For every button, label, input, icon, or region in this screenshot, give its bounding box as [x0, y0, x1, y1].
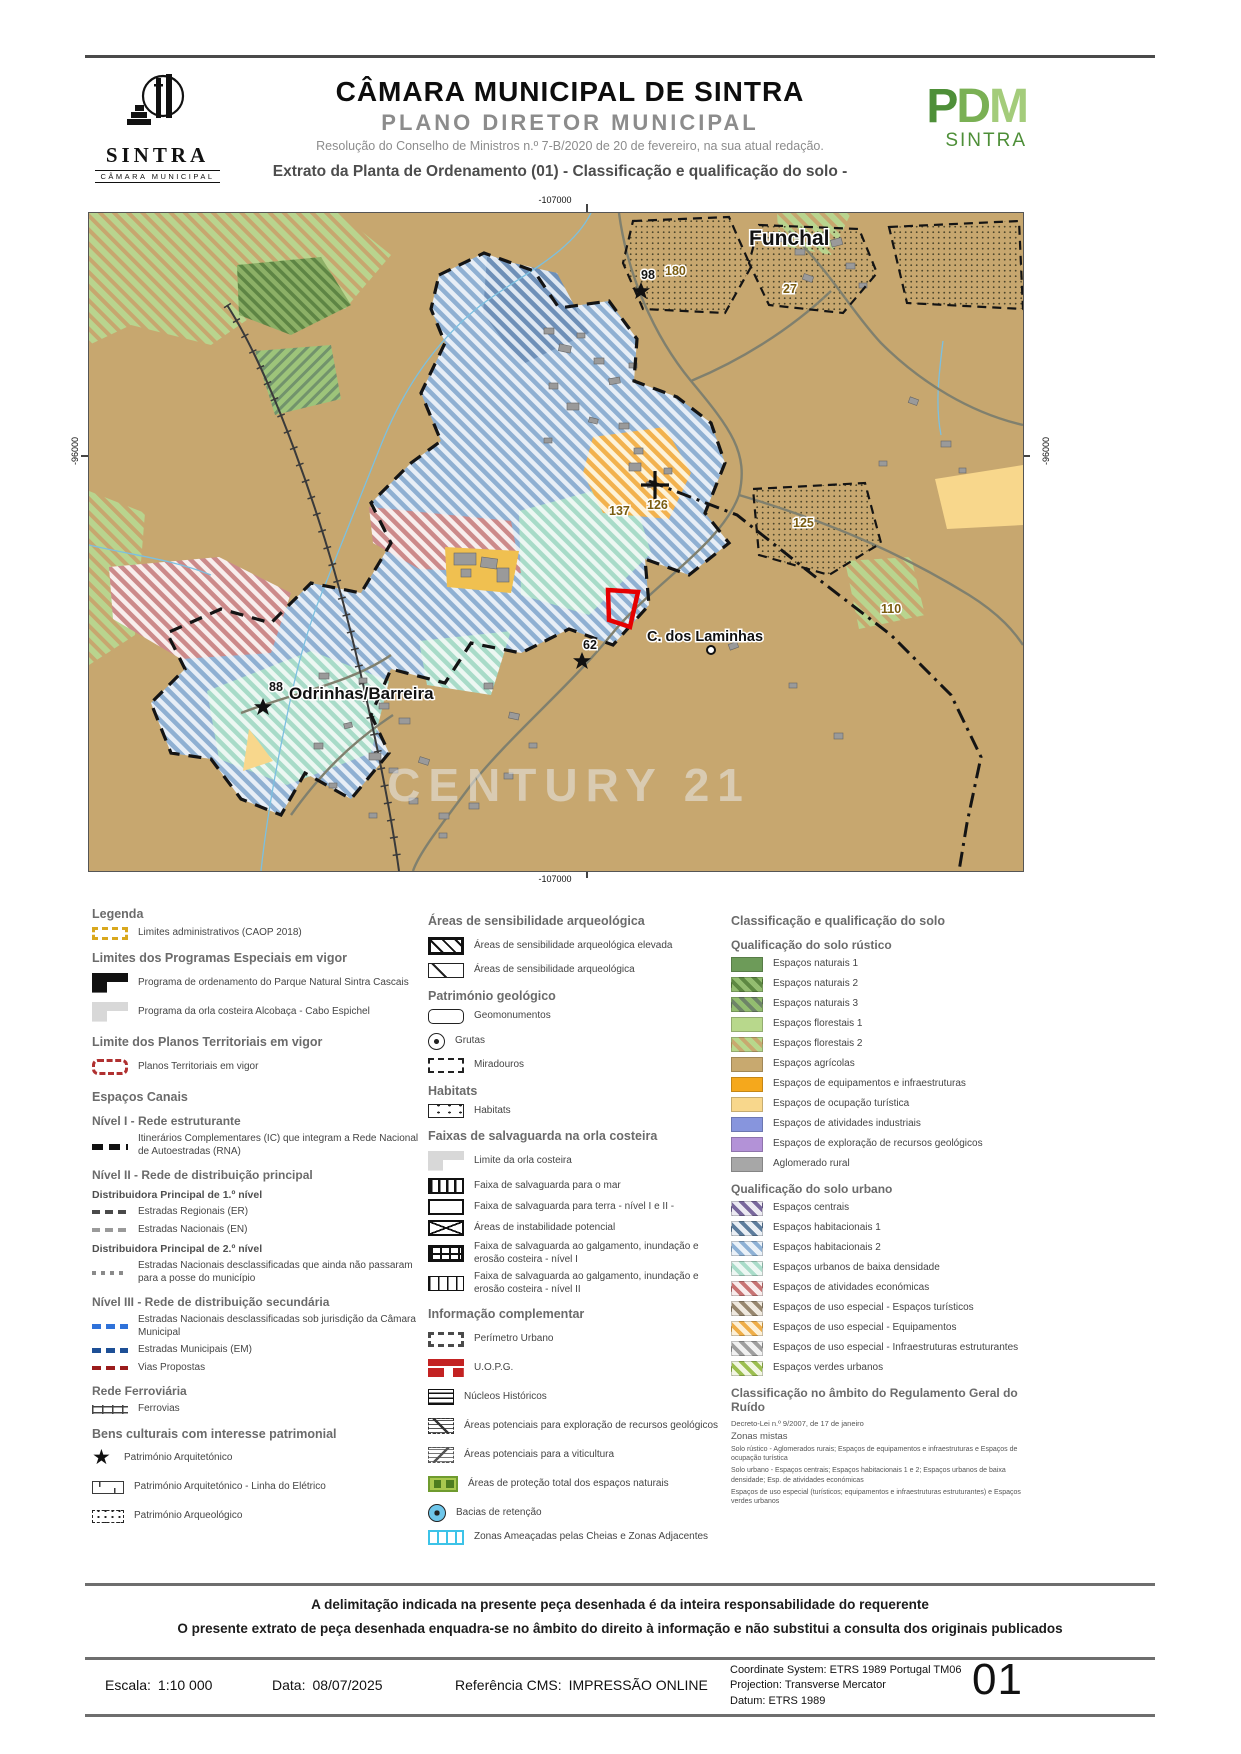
- legend-swatch-chip: [731, 1301, 763, 1316]
- legend-item-label: Espaços centrais: [773, 1202, 849, 1215]
- legend-item-label: Espaços de atividades económicas: [773, 1282, 929, 1295]
- footer-coordinate-system: Coordinate System: ETRS 1989 Portugal TM…: [730, 1663, 962, 1709]
- footer-escala-label: Escala:: [105, 1677, 151, 1693]
- legend-item-label: Património Arquitetónico - Linha do Elét…: [134, 1481, 326, 1494]
- legend-swatch-orla: [92, 1002, 128, 1022]
- footer-data-label: Data:: [272, 1677, 305, 1693]
- map-site-180: 180: [665, 264, 686, 278]
- legend-sub: Distribuidora Principal de 2.º nível: [92, 1243, 424, 1255]
- legend-item: Espaços de exploração de recursos geológ…: [731, 1137, 1033, 1152]
- legend-item-label: Habitats: [474, 1105, 511, 1118]
- legend-item: Espaços de uso especial - Equipamentos: [731, 1321, 1033, 1336]
- legend-swatch-chip: [731, 1321, 763, 1336]
- legend-swatch-habitats: [428, 1104, 464, 1118]
- footer-referencia: Referência CMS:IMPRESSÃO ONLINE: [455, 1677, 708, 1693]
- legend-h2: Nível II - Rede de distribuição principa…: [92, 1168, 424, 1182]
- legend-swatch-admin: [92, 927, 128, 940]
- legend-item: Espaços verdes urbanos: [731, 1361, 1033, 1376]
- legend-item: Itinerários Complementares (IC) que inte…: [92, 1133, 424, 1158]
- legend-swatch-vitic: [428, 1447, 454, 1463]
- legend-swatch-chip: [731, 1077, 763, 1092]
- legend-swatch-chip: [731, 997, 763, 1012]
- legend-item: Áreas de proteção total dos espaços natu…: [428, 1472, 730, 1496]
- legend-h1: Legenda: [92, 907, 424, 921]
- coord-tick-left: [81, 455, 88, 457]
- legend-item: Espaços urbanos de baixa densidade: [731, 1261, 1033, 1276]
- legend-item-label: Áreas de proteção total dos espaços natu…: [468, 1478, 669, 1491]
- legend-item-label: Áreas potenciais para exploração de recu…: [464, 1420, 718, 1433]
- legend-swatch-fx-galg2: [428, 1276, 464, 1291]
- legend-swatch-arqueo: [92, 1510, 124, 1523]
- legend-item-label: Espaços habitacionais 2: [773, 1242, 881, 1255]
- legend-column-limites: LegendaLimites administrativos (CAOP 201…: [92, 896, 424, 1534]
- legend-item: Programa da orla costeira Alcobaça - Cab…: [92, 1000, 424, 1024]
- legend-column-arqueologia: Áreas de sensibilidade arqueológicaÁreas…: [428, 903, 730, 1550]
- legend-swatch-er: [92, 1210, 128, 1214]
- org-title: CÂMARA MUNICIPAL DE SINTRA: [240, 76, 900, 108]
- legend-h1: Bens culturais com interesse patrimonial: [92, 1427, 424, 1441]
- legend-item-label: Itinerários Complementares (IC) que inte…: [138, 1133, 424, 1158]
- header-title-block: CÂMARA MUNICIPAL DE SINTRA PLANO DIRETOR…: [240, 76, 900, 153]
- resolution-text: Resolução do Conselho de Ministros n.º 7…: [240, 139, 900, 153]
- legend-item-label: Bacias de retenção: [456, 1507, 542, 1520]
- legend-h2: Qualificação do solo urbano: [731, 1182, 1033, 1196]
- legend-h1: Faixas de salvaguarda na orla costeira: [428, 1129, 730, 1143]
- legend-item-label: Áreas de instabilidade potencial: [474, 1222, 615, 1235]
- legend-swatch-chip: [731, 1221, 763, 1236]
- legend-item: Património Arquitetónico: [92, 1447, 424, 1471]
- legend-swatch-chip: [731, 1117, 763, 1132]
- legend-item: Limite da orla costeira: [428, 1149, 730, 1173]
- legend-swatch-chip: [731, 1057, 763, 1072]
- legend-item-label: U.O.P.G.: [474, 1362, 513, 1375]
- legend-item: Aglomerado rural: [731, 1157, 1033, 1172]
- legend-sub: Distribuidora Principal de 1.º nível: [92, 1189, 424, 1201]
- map-site-125: 125: [793, 516, 814, 530]
- legend-swatch-en2: [92, 1271, 128, 1275]
- legend-h2: Nível III - Rede de distribuição secundá…: [92, 1295, 424, 1309]
- legend-item-label: Espaços de exploração de recursos geológ…: [773, 1138, 983, 1151]
- legend-swatch-en: [92, 1228, 128, 1232]
- legend-swatch-uopg: [428, 1359, 464, 1377]
- legend-item: Limites administrativos (CAOP 2018): [92, 927, 424, 940]
- legend-item: Áreas de sensibilidade arqueológica: [428, 963, 730, 978]
- legend-item-label: Limite da orla costeira: [474, 1155, 572, 1168]
- legend-h1: Limite dos Planos Territoriais em vigor: [92, 1035, 424, 1049]
- legend-swatch-fx-galg1: [428, 1245, 464, 1262]
- legend-item: Geomonumentos: [428, 1009, 730, 1024]
- legend-item: Espaços agrícolas: [731, 1057, 1033, 1072]
- legend-item-label: Áreas potenciais para a viticultura: [464, 1449, 614, 1462]
- legend-h1: Limites dos Programas Especiais em vigor: [92, 951, 424, 965]
- coord-label-right: -96000: [1041, 425, 1051, 465]
- footer-referencia-label: Referência CMS:: [455, 1677, 562, 1693]
- legend-item-label: Espaços florestais 1: [773, 1018, 863, 1031]
- legend-item-label: Espaços de atividades industriais: [773, 1118, 921, 1131]
- legend-item-label: Faixa de salvaguarda para terra - nível …: [474, 1201, 674, 1214]
- legend-item: Espaços naturais 3: [731, 997, 1033, 1012]
- legend-item: Espaços habitacionais 2: [731, 1241, 1033, 1256]
- legend-h2: Nível I - Rede estruturante: [92, 1114, 424, 1128]
- legend-item: Estradas Nacionais (EN): [92, 1224, 424, 1237]
- map-label-funchal: Funchal: [749, 227, 830, 250]
- legend-item-label: Programa da orla costeira Alcobaça - Cab…: [138, 1006, 370, 1019]
- page: { "header": { "org": "CÂMARA MUNICIPAL D…: [0, 0, 1241, 1754]
- legend-item: Estradas Regionais (ER): [92, 1206, 424, 1219]
- legend-fine: Solo urbano - Espaços centrais; Espaços …: [731, 1466, 1033, 1485]
- map-label-odrinhas: Odrinhas/Barreira: [289, 684, 434, 703]
- legend-item-label: Planos Territoriais em vigor: [138, 1061, 258, 1074]
- legend-item-label: Espaços florestais 2: [773, 1038, 863, 1051]
- legend-item: Habitats: [428, 1104, 730, 1118]
- legend-swatch-bacias: [428, 1504, 446, 1522]
- legend-swatch-chip: [731, 1157, 763, 1172]
- legend-swatch-star: [92, 1449, 114, 1469]
- legend-item: Zonas Ameaçadas pelas Cheias e Zonas Adj…: [428, 1530, 730, 1545]
- legend-item-label: Estradas Municipais (EM): [138, 1344, 252, 1357]
- footer-data: Data:08/07/2025: [272, 1677, 383, 1693]
- legend-item-label: Estradas Nacionais desclassificadas que …: [138, 1260, 424, 1285]
- legend-h2: Rede Ferroviária: [92, 1384, 424, 1398]
- footer-rule-bottom: [85, 1714, 1155, 1717]
- legend-item-label: Espaços naturais 2: [773, 978, 858, 991]
- map-watermark: CENTURY 21: [387, 759, 751, 811]
- legend-item: Espaços de uso especial - Infraestrutura…: [731, 1341, 1033, 1356]
- legend-item: Espaços naturais 2: [731, 977, 1033, 992]
- legend-swatch-fx-terra: [428, 1199, 464, 1215]
- legend-item-label: Áreas de sensibilidade arqueológica elev…: [474, 940, 672, 953]
- legend-h1: Espaços Canais: [92, 1090, 424, 1104]
- pdm-name: SINTRA: [875, 130, 1027, 152]
- legend-item: Espaços de uso especial - Espaços turíst…: [731, 1301, 1033, 1316]
- legend-item: Espaços naturais 1: [731, 957, 1033, 972]
- legend-item-label: Áreas de sensibilidade arqueológica: [474, 964, 635, 977]
- legend-swatch-pnsc: [92, 973, 128, 993]
- coord-label-left: -96000: [70, 425, 80, 465]
- disclaimer-line1: A delimitação indicada na presente peça …: [85, 1597, 1155, 1612]
- legend-item-label: Espaços verdes urbanos: [773, 1362, 883, 1375]
- legend-item: Perímetro Urbano: [428, 1327, 730, 1351]
- legend-item-label: Vias Propostas: [138, 1362, 205, 1375]
- pdm-letter-p: P: [926, 80, 956, 133]
- legend-item-label: Programa de ordenamento do Parque Natura…: [138, 977, 409, 990]
- map-site-88: 88: [269, 680, 283, 694]
- footer-referencia-value: IMPRESSÃO ONLINE: [569, 1677, 708, 1693]
- map-site-98: 98: [641, 268, 655, 282]
- legend-item-label: Espaços de uso especial - Infraestrutura…: [773, 1342, 1018, 1355]
- legend-item: Espaços de atividades industriais: [731, 1117, 1033, 1132]
- legend-fine: Solo rústico - Aglomerados rurais; Espaç…: [731, 1445, 1033, 1464]
- legend-item-label: Património Arquitetónico: [124, 1452, 232, 1465]
- footer-escala: Escala:1:10 000: [105, 1677, 212, 1693]
- legend-swatch-chip: [731, 1241, 763, 1256]
- legend-item: Património Arquitetónico - Linha do Elét…: [92, 1476, 424, 1500]
- legend-item-label: Espaços naturais 1: [773, 958, 858, 971]
- legend-item-label: Limites administrativos (CAOP 2018): [138, 927, 302, 940]
- legend-item: Espaços de ocupação turística: [731, 1097, 1033, 1112]
- legend-item-label: Aglomerado rural: [773, 1158, 850, 1171]
- legend-item-label: Espaços de ocupação turística: [773, 1098, 909, 1111]
- sintra-logo-icon: [119, 72, 197, 136]
- legend-swatch-em: [92, 1348, 128, 1353]
- legend-h1: Habitats: [428, 1084, 730, 1098]
- legend-item: Espaços florestais 1: [731, 1017, 1033, 1032]
- legend-swatch-chip: [731, 957, 763, 972]
- legend-item: Áreas de sensibilidade arqueológica elev…: [428, 934, 730, 958]
- legend-item: Áreas potenciais para exploração de recu…: [428, 1414, 730, 1438]
- coord-label-bottom: -107000: [88, 874, 1022, 884]
- legend-item: Espaços habitacionais 1: [731, 1221, 1033, 1236]
- legend-item: Núcleos Históricos: [428, 1385, 730, 1409]
- legend-item-label: Espaços de uso especial - Equipamentos: [773, 1322, 956, 1335]
- legend-item-label: Estradas Nacionais desclassificadas sob …: [138, 1314, 424, 1339]
- legend-swatch-chip: [731, 1341, 763, 1356]
- legend-swatch-perim: [428, 1332, 464, 1347]
- legend-swatch-ncm: [92, 1324, 128, 1329]
- legend-item: Faixa de salvaguarda ao galgamento, inun…: [428, 1241, 730, 1266]
- legend-item: Espaços de atividades económicas: [731, 1281, 1033, 1296]
- legend-swatch-chip: [731, 1201, 763, 1216]
- legend-item: Estradas Nacionais desclassificadas que …: [92, 1260, 424, 1285]
- map-site-137: 137: [609, 504, 630, 518]
- legend-h1: Informação complementar: [428, 1307, 730, 1321]
- legend-item-label: Faixa de salvaguarda para o mar: [474, 1180, 621, 1193]
- legend-item-label: Espaços de uso especial - Espaços turíst…: [773, 1302, 974, 1315]
- legend-swatch-tram: [92, 1481, 124, 1494]
- legend-swatch-chip: [731, 1137, 763, 1152]
- legend-note2: Zonas mistas: [731, 1431, 1033, 1442]
- legend-item-label: Núcleos Históricos: [464, 1391, 547, 1404]
- legend-swatch-planos: [92, 1059, 128, 1075]
- legend-h1: Áreas de sensibilidade arqueológica: [428, 914, 730, 928]
- legend-fine: Espaços de uso especial (turísticos; equ…: [731, 1488, 1033, 1507]
- pdm-logo: PDM SINTRA: [875, 84, 1027, 152]
- legend-item: Ferrovias: [92, 1403, 424, 1416]
- legend-item: Áreas potenciais para a viticultura: [428, 1443, 730, 1467]
- legend-swatch-chip: [731, 1097, 763, 1112]
- legend-item: Planos Territoriais em vigor: [92, 1055, 424, 1079]
- legend-item: Programa de ordenamento do Parque Natura…: [92, 971, 424, 995]
- legend-swatch-vias: [92, 1366, 128, 1371]
- legend-item: Património Arqueológico: [92, 1505, 424, 1529]
- legend-swatch-chip: [731, 1037, 763, 1052]
- legend-swatch-arq: [428, 963, 464, 978]
- map-svg: CENTURY 21 Funchal Odrinhas/Barreira C. …: [89, 213, 1023, 871]
- legend-swatch-prot-nat: [428, 1476, 458, 1492]
- map-label-laminhas: C. dos Laminhas: [647, 629, 763, 645]
- legend-swatch-chip: [731, 1017, 763, 1032]
- legend-swatch-chip: [731, 1281, 763, 1296]
- legend-swatch-arq-elev: [428, 937, 464, 955]
- coord-tick-top: [586, 204, 588, 212]
- legend-item-label: Estradas Nacionais (EN): [138, 1224, 247, 1237]
- top-rule: [85, 55, 1155, 58]
- legend-swatch-nucleos: [428, 1389, 454, 1405]
- footer-coord-line3: Datum: ETRS 1989: [730, 1694, 962, 1709]
- map-site-27: 27: [783, 282, 797, 296]
- coord-tick-right: [1023, 455, 1030, 457]
- legend-swatch-fx-mar: [428, 1178, 464, 1194]
- map-site-126: 126: [647, 498, 668, 512]
- pdm-letter-m: M: [989, 80, 1027, 133]
- map-area-arqueologica-ne: [889, 221, 1023, 309]
- legend-item-label: Faixa de salvaguarda ao galgamento, inun…: [474, 1241, 730, 1266]
- legend-swatch-chip: [731, 1261, 763, 1276]
- legend-item: Estradas Municipais (EM): [92, 1344, 424, 1357]
- legend-h1: Património geológico: [428, 989, 730, 1003]
- pdm-acronym: PDM: [875, 84, 1027, 130]
- footer-coord-line2: Projection: Transverse Mercator: [730, 1678, 962, 1693]
- disclaimer-rule: [85, 1583, 1155, 1586]
- legend-h1: Classificação e qualificação do solo: [731, 914, 1033, 928]
- legend-column-classificacao: Classificação e qualificação do soloQual…: [731, 903, 1033, 1509]
- footer-page-number: 01: [972, 1655, 1023, 1705]
- coord-label-top: -107000: [88, 195, 1022, 205]
- legend-item-label: Espaços habitacionais 1: [773, 1222, 881, 1235]
- legend-swatch-rec-geo: [428, 1418, 454, 1434]
- map-canvas: CENTURY 21 Funchal Odrinhas/Barreira C. …: [88, 212, 1024, 872]
- map-laminhas-marker: [707, 646, 715, 654]
- legend-item-label: Espaços urbanos de baixa densidade: [773, 1262, 940, 1275]
- legend-item-label: Ferrovias: [138, 1403, 180, 1416]
- legend-item: Faixa de salvaguarda para terra - nível …: [428, 1199, 730, 1215]
- legend-swatch-cheias: [428, 1530, 464, 1545]
- legend-item-label: Miradouros: [474, 1059, 524, 1072]
- footer-escala-value: 1:10 000: [158, 1677, 213, 1693]
- footer-coord-line1: Coordinate System: ETRS 1989 Portugal TM…: [730, 1663, 962, 1678]
- legend-item: Espaços florestais 2: [731, 1037, 1033, 1052]
- legend-swatch-ic: [92, 1144, 128, 1150]
- legend-swatch-orla-lim: [428, 1151, 464, 1171]
- map-site-110: 110: [881, 602, 901, 616]
- legend-swatch-geomon: [428, 1009, 464, 1024]
- legend-swatch-instab: [428, 1220, 464, 1236]
- legend-item-label: Zonas Ameaçadas pelas Cheias e Zonas Adj…: [474, 1531, 708, 1544]
- pdm-letter-d: D: [956, 80, 989, 133]
- legend-item: Faixa de salvaguarda ao galgamento, inun…: [428, 1271, 730, 1296]
- legend-swatch-mirad: [428, 1058, 464, 1073]
- disclaimer-line2: O presente extrato de peça desenhada enq…: [85, 1621, 1155, 1636]
- legend-item: Espaços centrais: [731, 1201, 1033, 1216]
- coord-tick-bottom: [586, 871, 588, 878]
- legend-item: Áreas de instabilidade potencial: [428, 1220, 730, 1236]
- plan-title: PLANO DIRETOR MUNICIPAL: [240, 110, 900, 136]
- legend-swatch-rail: [92, 1405, 128, 1414]
- legend-item: Estradas Nacionais desclassificadas sob …: [92, 1314, 424, 1339]
- legend-item: Grutas: [428, 1029, 730, 1053]
- legend-item: Espaços de equipamentos e infraestrutura…: [731, 1077, 1033, 1092]
- map-site-62: 62: [583, 638, 597, 652]
- legend-note: Decreto-Lei n.º 9/2007, de 17 de janeiro: [731, 1419, 1033, 1428]
- legend-item-label: Estradas Regionais (ER): [138, 1206, 248, 1219]
- legend-item: Miradouros: [428, 1058, 730, 1073]
- legend-item-label: Grutas: [455, 1035, 485, 1048]
- legend-item-label: Espaços agrícolas: [773, 1058, 855, 1071]
- extract-title: Extrato da Planta de Ordenamento (01) - …: [160, 163, 960, 181]
- legend-swatch-chip: [731, 977, 763, 992]
- legend-item-label: Espaços de equipamentos e infraestrutura…: [773, 1078, 966, 1091]
- legend-item-label: Perímetro Urbano: [474, 1333, 553, 1346]
- legend-item: U.O.P.G.: [428, 1356, 730, 1380]
- legend-item-label: Património Arqueológico: [134, 1510, 242, 1523]
- footer-data-value: 08/07/2025: [312, 1677, 382, 1693]
- legend-h2: Classificação no âmbito do Regulamento G…: [731, 1386, 1033, 1414]
- legend-h2: Qualificação do solo rústico: [731, 938, 1033, 952]
- legend-item-label: Faixa de salvaguarda ao galgamento, inun…: [474, 1271, 730, 1296]
- legend-item: Bacias de retenção: [428, 1501, 730, 1525]
- legend-item-label: Geomonumentos: [474, 1010, 551, 1023]
- legend-swatch-chip: [731, 1361, 763, 1376]
- legend-item-label: Espaços naturais 3: [773, 998, 858, 1011]
- legend-swatch-grutas: [428, 1033, 445, 1050]
- legend-item: Faixa de salvaguarda para o mar: [428, 1178, 730, 1194]
- legend-item: Vias Propostas: [92, 1362, 424, 1375]
